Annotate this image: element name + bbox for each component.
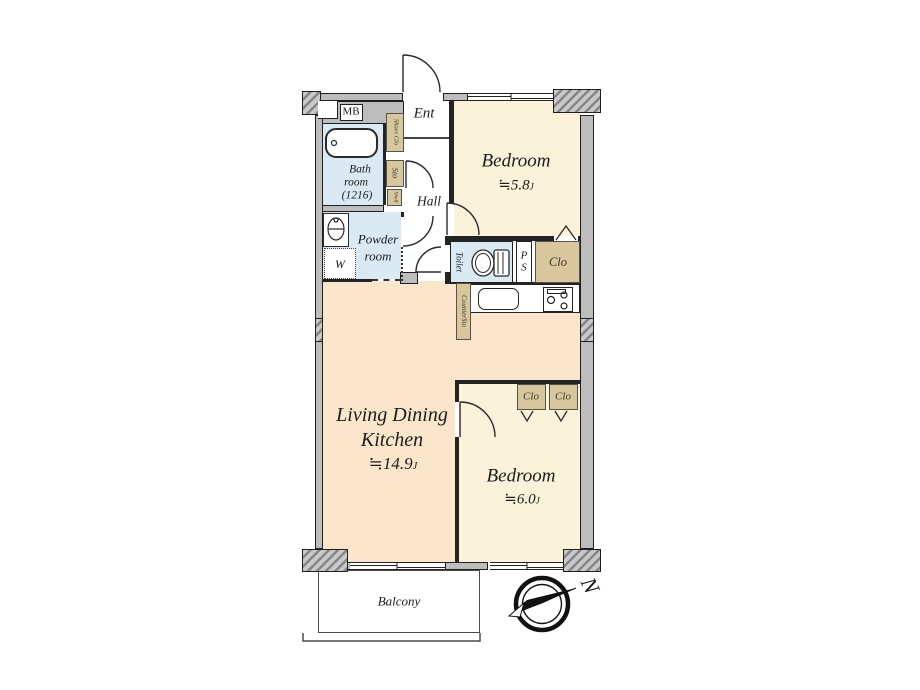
corner-block-bottom-left — [302, 549, 348, 572]
wall-bottom-mid — [445, 562, 488, 570]
wall-powder-right-upper — [401, 212, 404, 217]
wall-bedroom1-left-upper — [449, 101, 454, 203]
wall-powder-bottom-dashed — [372, 279, 401, 281]
wall-top-mid — [443, 93, 468, 101]
window-bedroom1-top — [468, 93, 553, 101]
bedroom2-size-unit: J — [536, 497, 540, 507]
hall-label: Hall — [417, 194, 441, 208]
compass-icon: N — [509, 572, 605, 630]
kitchen-sink-icon — [478, 288, 519, 310]
door-storage — [406, 161, 433, 188]
ldk-size-unit: J — [413, 461, 418, 472]
bath-label-1: Bath — [349, 164, 371, 176]
toilet-label: Toilet — [455, 252, 464, 272]
bath-label-3: (1216) — [342, 190, 373, 202]
column-mid-right — [580, 318, 594, 342]
shelf-label: Shelf — [392, 192, 398, 203]
bathtub-icon — [325, 128, 378, 158]
ldk-name-2: Kitchen — [361, 430, 423, 450]
ps-label-2: S — [521, 263, 527, 274]
corner-block-top-right — [553, 89, 601, 113]
wall-powder-bottom — [322, 279, 372, 282]
ldk-size: ≒14.9J — [369, 455, 418, 473]
washer-label: W — [335, 258, 345, 270]
bedroom2-name: Bedroom — [487, 467, 556, 486]
wall-top-left — [315, 93, 403, 101]
ent-label: Ent — [414, 107, 435, 122]
door-gap-bedroom2 — [455, 402, 459, 437]
bedroom2-size-value: ≒6.0 — [504, 492, 535, 508]
bedroom2-size: ≒6.0J — [504, 493, 539, 508]
ldk-size-value: ≒14.9 — [369, 454, 413, 473]
stove-grill-icon — [547, 289, 566, 294]
bedroom1-size: ≒5.8J — [498, 179, 533, 194]
bedroom1-size-value: ≒5.8 — [498, 178, 529, 194]
compass-needle — [509, 588, 576, 616]
storage-label: Sto — [391, 168, 400, 179]
door-toilet — [416, 247, 441, 272]
closet-hall-label: Clo — [549, 256, 567, 269]
floor-plan: MB Ent Hall Shoes Clo Sto Shelf Bath roo… — [0, 0, 920, 690]
balcony-step-line — [303, 633, 480, 641]
balcony-label: Balcony — [378, 595, 421, 608]
powder-label-2: room — [365, 250, 392, 263]
corner-block-bottom-right — [563, 549, 601, 572]
washbasin-icon — [323, 213, 349, 247]
column-mid-left — [315, 318, 323, 342]
wall-notch — [318, 101, 338, 119]
north-label: N — [575, 572, 605, 598]
wall-entrance-step — [404, 137, 449, 139]
wall-powder-right-lower — [401, 247, 404, 281]
counter-storage-label: CounterSto — [460, 295, 467, 327]
bedroom1-size-unit: J — [530, 183, 534, 193]
ldk-name-1: Living Dining — [336, 405, 448, 425]
wall-bedroom2-left-lower — [455, 437, 459, 562]
door-powder — [403, 216, 433, 246]
bath-label-2: room — [344, 177, 368, 189]
wall-bath-bottom — [322, 205, 384, 212]
shoes-closet-label: Shoes Clo — [392, 119, 399, 145]
door-entrance — [403, 55, 440, 92]
window-bedroom2-bottom — [490, 562, 563, 570]
wall-bedroom2-left-upper — [455, 380, 459, 402]
bedroom1-name: Bedroom — [482, 152, 551, 171]
closet-bedroom2-right-label: Clo — [555, 392, 571, 403]
window-ldk-bottom — [350, 562, 445, 570]
compass-tail-arrow — [509, 603, 524, 617]
mb-label: MB — [342, 107, 359, 118]
closet-bedroom2-left-label: Clo — [523, 392, 539, 403]
ps-label-1: P — [521, 251, 528, 262]
powder-label-1: Powder — [358, 233, 398, 246]
